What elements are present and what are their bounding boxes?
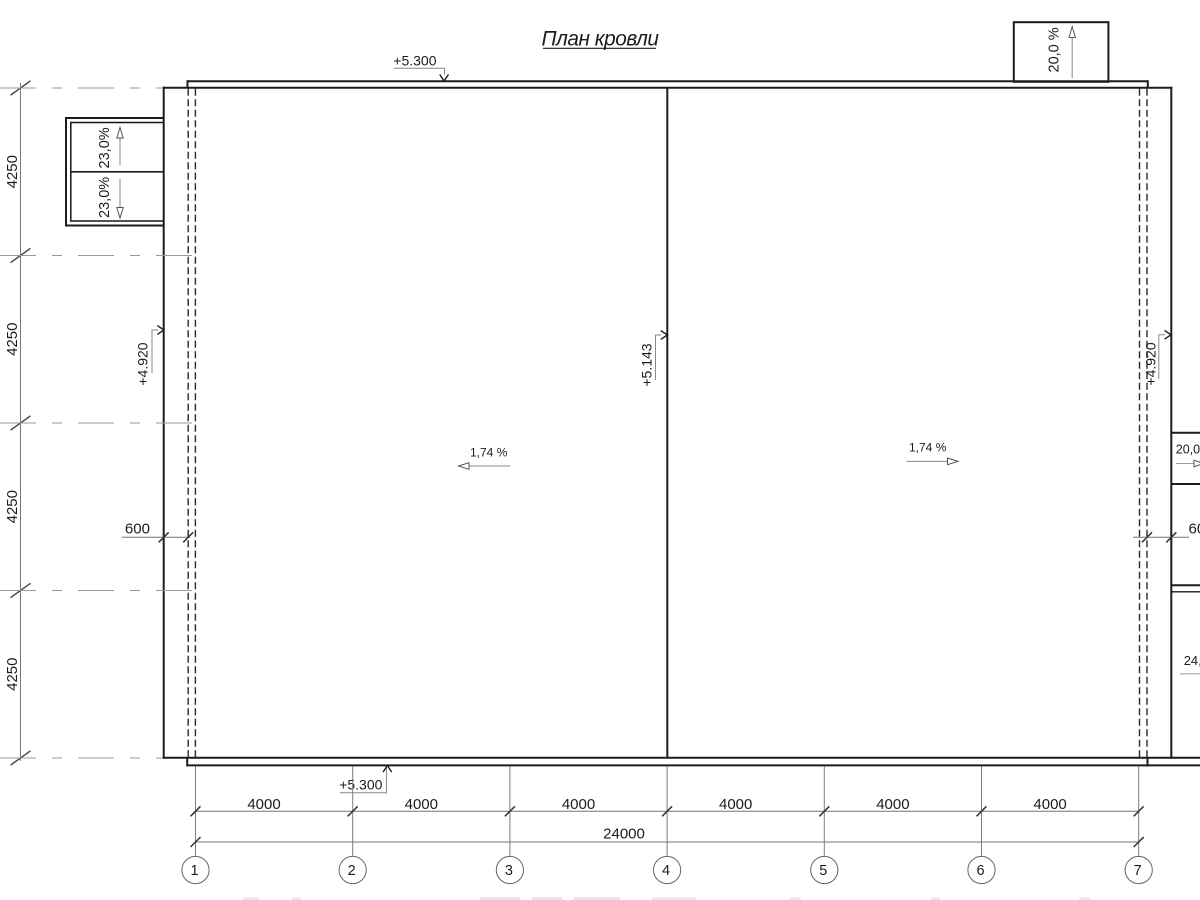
svg-text:+5.300: +5.300 bbox=[393, 52, 436, 68]
svg-text:20,0: 20,0 bbox=[1176, 443, 1200, 457]
svg-text:7: 7 bbox=[1134, 863, 1142, 879]
svg-text:24,0: 24,0 bbox=[1184, 653, 1200, 668]
svg-text:4000: 4000 bbox=[247, 796, 280, 813]
svg-text:1,74 %: 1,74 % bbox=[909, 440, 947, 454]
svg-text:600: 600 bbox=[1189, 521, 1200, 538]
svg-text:23,0%: 23,0% bbox=[97, 177, 113, 218]
svg-text:+5.300: +5.300 bbox=[339, 776, 382, 792]
svg-text:4000: 4000 bbox=[405, 796, 438, 813]
svg-text:4000: 4000 bbox=[876, 796, 909, 813]
svg-text:4000: 4000 bbox=[719, 796, 752, 813]
svg-text:6: 6 bbox=[976, 863, 984, 879]
svg-text:+4.920: +4.920 bbox=[134, 342, 150, 385]
svg-text:4250: 4250 bbox=[4, 490, 21, 523]
svg-text:4000: 4000 bbox=[1033, 796, 1066, 813]
svg-text:+5.143: +5.143 bbox=[639, 343, 655, 386]
svg-text:3: 3 bbox=[505, 863, 513, 879]
svg-text:1,74 %: 1,74 % bbox=[470, 446, 508, 460]
svg-text:+4.920: +4.920 bbox=[1142, 342, 1158, 385]
svg-text:2: 2 bbox=[348, 863, 356, 879]
svg-text:600: 600 bbox=[125, 521, 150, 538]
svg-text:План кровли: План кровли bbox=[541, 28, 659, 51]
svg-text:20,0 %: 20,0 % bbox=[1047, 27, 1063, 72]
svg-text:1: 1 bbox=[190, 863, 198, 879]
svg-text:4250: 4250 bbox=[4, 323, 21, 356]
svg-text:23,0%: 23,0% bbox=[97, 127, 113, 168]
svg-text:4250: 4250 bbox=[4, 155, 21, 188]
svg-text:4: 4 bbox=[662, 863, 670, 879]
svg-text:4250: 4250 bbox=[4, 658, 21, 691]
svg-text:24000: 24000 bbox=[603, 826, 645, 843]
svg-text:4000: 4000 bbox=[562, 796, 595, 813]
svg-text:5: 5 bbox=[819, 863, 827, 879]
